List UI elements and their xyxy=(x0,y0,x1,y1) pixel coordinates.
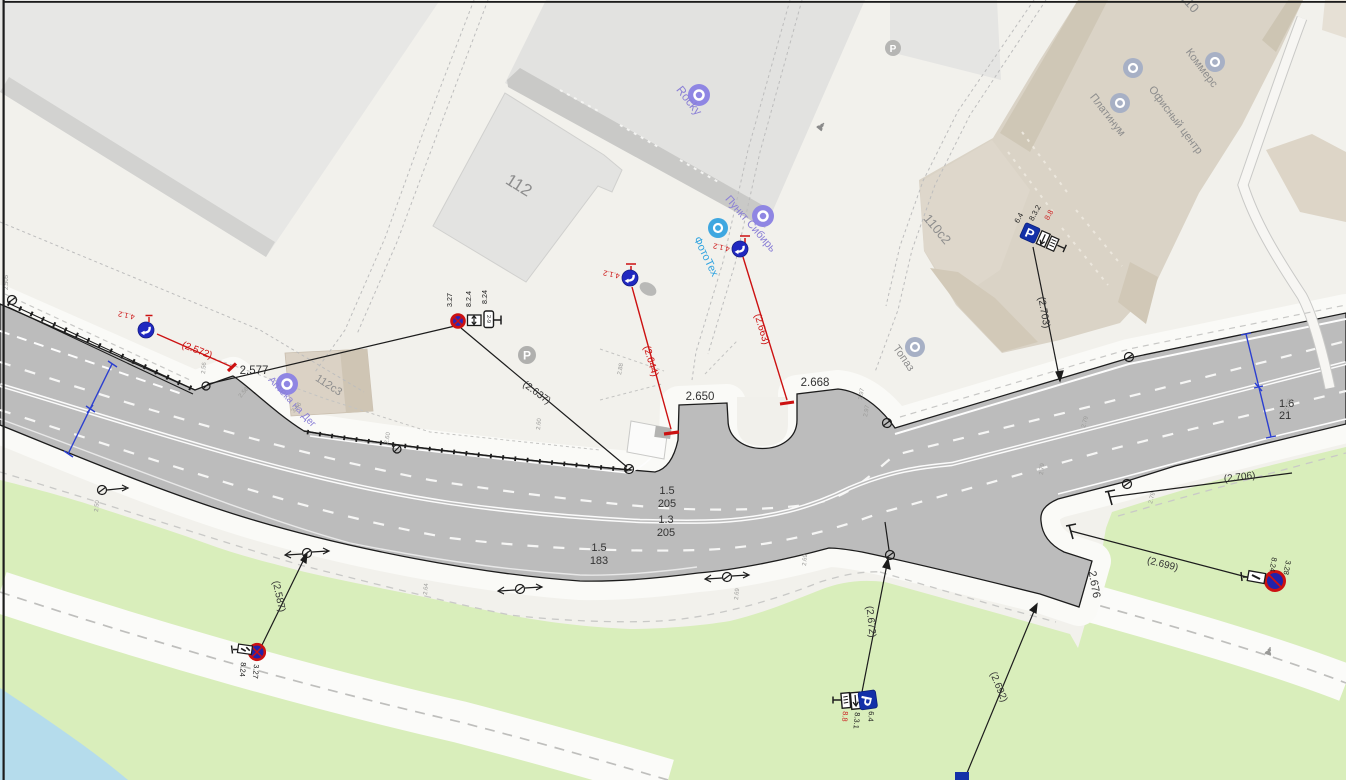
svg-text:2.50: 2.50 xyxy=(94,499,101,512)
svg-text:1.5: 1.5 xyxy=(659,485,674,497)
svg-text:2.79: 2.79 xyxy=(1039,462,1046,475)
svg-text:2.64: 2.64 xyxy=(423,582,430,595)
svg-text:1.5: 1.5 xyxy=(591,542,606,554)
svg-text:6.4: 6.4 xyxy=(866,711,876,722)
svg-text:8.24: 8.24 xyxy=(480,290,489,304)
svg-text:2.505: 2.505 xyxy=(4,274,10,290)
svg-text:2.60: 2.60 xyxy=(536,417,543,430)
svg-text:8.2.4: 8.2.4 xyxy=(464,291,473,307)
svg-text:P: P xyxy=(523,349,531,363)
svg-text:2-9: 2-9 xyxy=(485,315,491,323)
svg-text:2.650: 2.650 xyxy=(686,391,715,403)
svg-text:8.8: 8.8 xyxy=(840,711,850,722)
svg-text:2.56: 2.56 xyxy=(201,361,208,374)
svg-text:3.27: 3.27 xyxy=(445,293,454,307)
svg-text:8.3.1: 8.3.1 xyxy=(852,712,862,729)
svg-text:205: 205 xyxy=(658,498,676,510)
svg-text:P: P xyxy=(890,44,897,55)
svg-text:3.27: 3.27 xyxy=(251,664,261,679)
svg-text:8.24: 8.24 xyxy=(238,662,248,677)
svg-text:183: 183 xyxy=(590,555,608,567)
svg-text:205: 205 xyxy=(657,527,675,539)
svg-text:1.3: 1.3 xyxy=(658,514,673,526)
svg-text:2.668: 2.668 xyxy=(801,377,830,389)
svg-text:2.69: 2.69 xyxy=(734,587,741,600)
svg-text:2.69: 2.69 xyxy=(802,553,809,566)
